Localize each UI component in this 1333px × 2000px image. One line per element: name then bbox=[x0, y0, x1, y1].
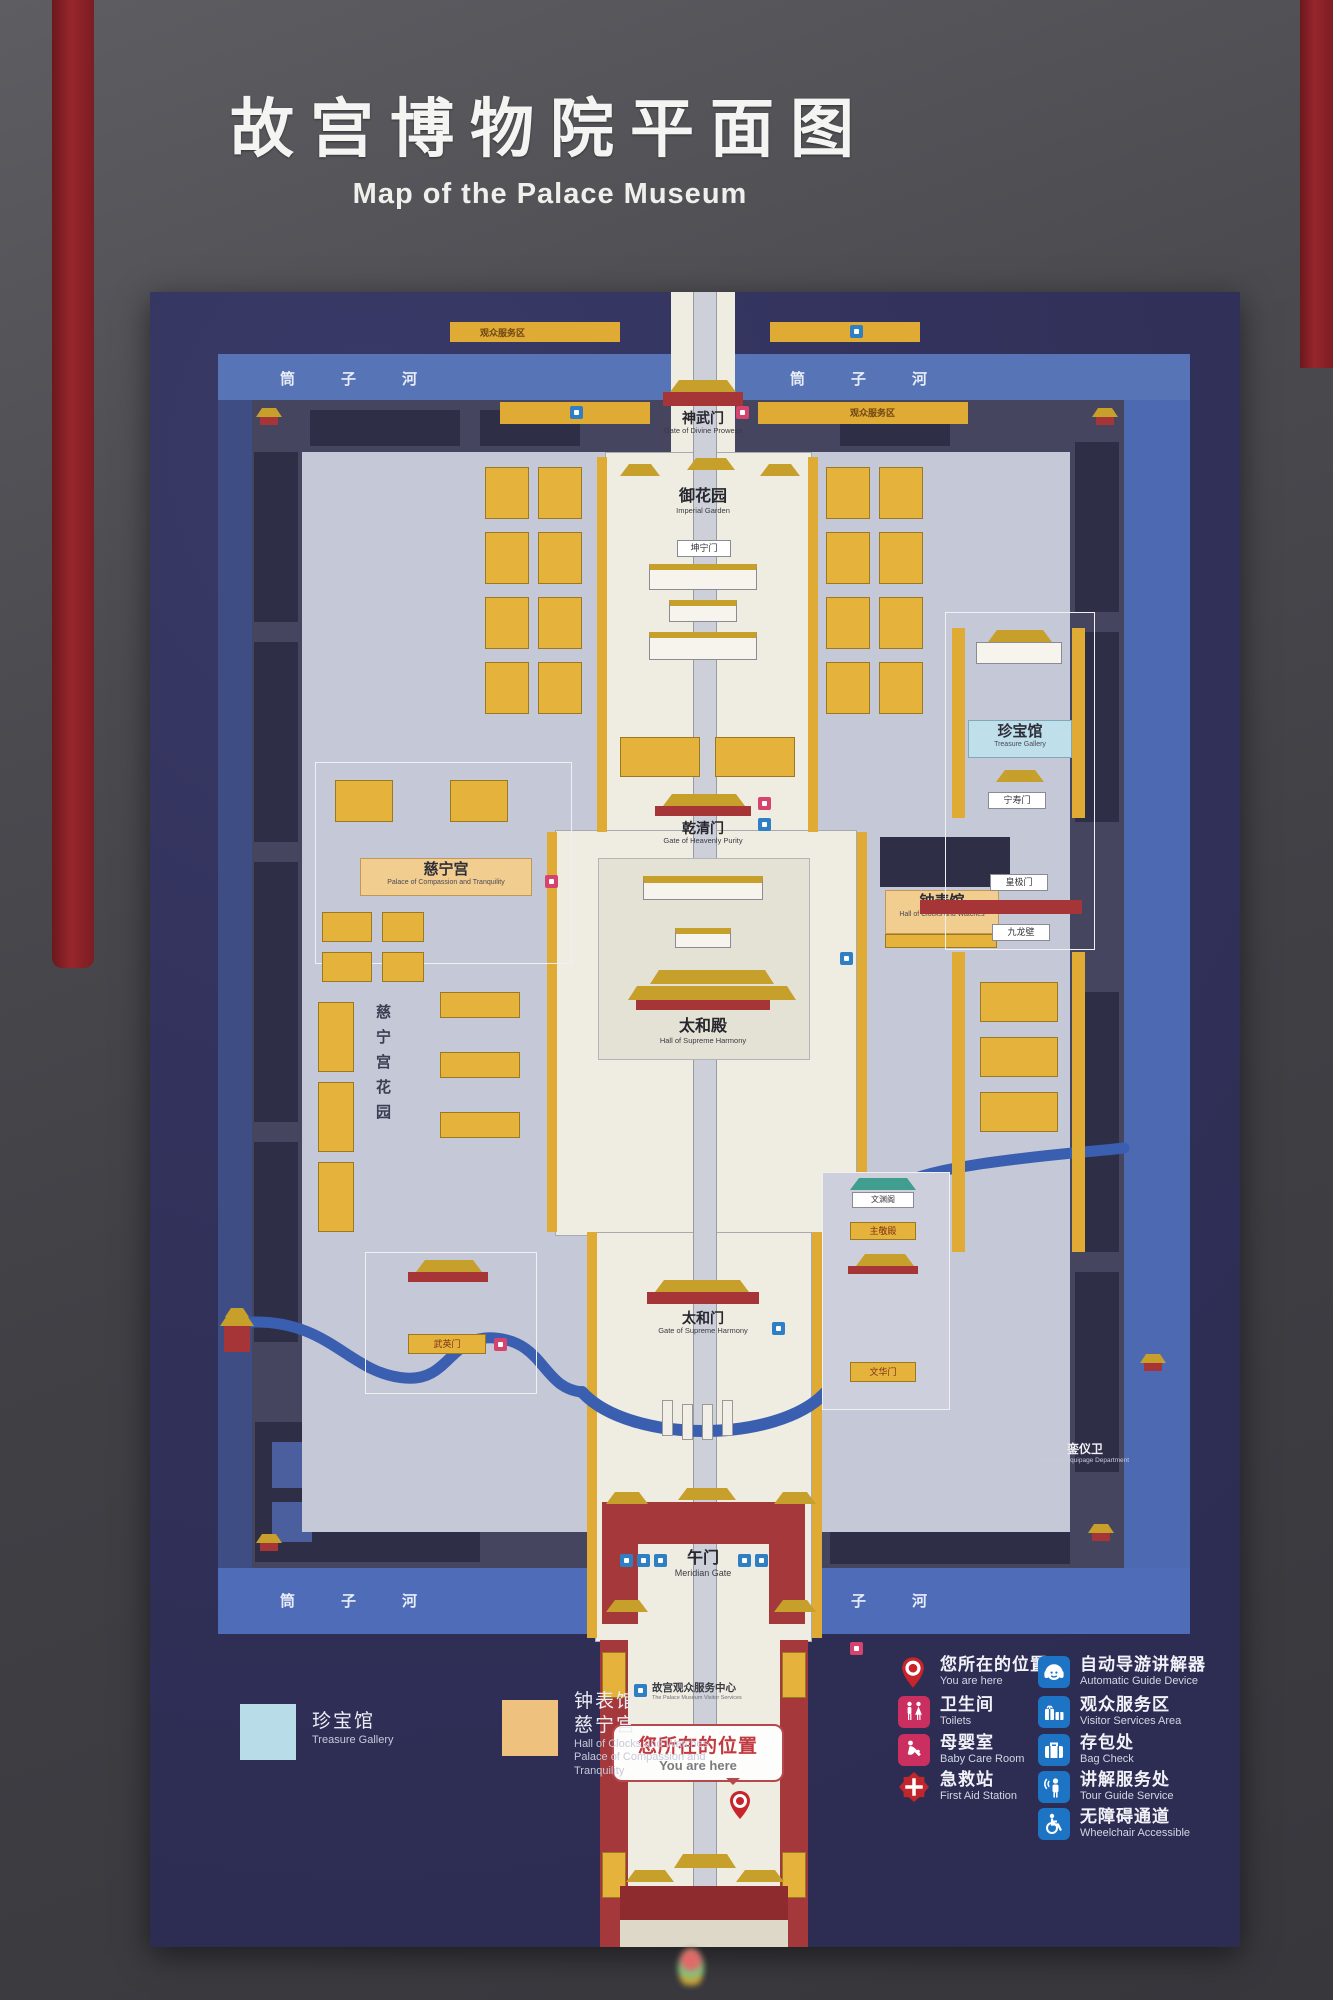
visitor-services-icon bbox=[1038, 1696, 1070, 1728]
legend-tour-guide: 讲解服务处 Tour Guide Service bbox=[1038, 1771, 1070, 1803]
label-wumen: 午门 Meridian Gate bbox=[643, 1550, 763, 1579]
palace-block bbox=[322, 912, 372, 942]
wumen-roof bbox=[678, 1488, 736, 1500]
label-nine-dragon-screen: 九龙壁 bbox=[992, 924, 1050, 941]
ningshou-gate-roof bbox=[996, 770, 1044, 782]
corridor bbox=[1072, 628, 1085, 818]
legend-toilets: 卫生间 Toilets bbox=[898, 1696, 930, 1728]
corner-tower bbox=[256, 408, 282, 425]
service-icon bbox=[620, 1554, 633, 1567]
red-post-right bbox=[1300, 0, 1333, 368]
legend-swatch-treasure bbox=[240, 1704, 296, 1760]
wuying-hall-base bbox=[408, 1272, 488, 1282]
legend-baby-care: 母婴室 Baby Care Room bbox=[898, 1734, 930, 1766]
corridor bbox=[952, 952, 965, 1252]
east-gate-tower bbox=[1140, 1354, 1166, 1371]
palace-block bbox=[318, 1162, 354, 1232]
label-luanyiwei: 銮仪卫 Imperial Equipage Department bbox=[1020, 1440, 1150, 1464]
corridor bbox=[1072, 952, 1085, 1252]
wenhua-hall-roof bbox=[856, 1254, 914, 1266]
label-wuyingmen: 武英门 bbox=[408, 1334, 486, 1354]
south-gate-illustration bbox=[620, 1848, 788, 1947]
water-bridge bbox=[662, 1400, 673, 1436]
red-post-left bbox=[52, 0, 94, 968]
legend-auto-guide: 自动导游讲解器 Automatic Guide Device bbox=[1038, 1656, 1070, 1688]
palace-block bbox=[980, 982, 1058, 1022]
you-are-here-pin bbox=[728, 1790, 752, 1820]
palace-block bbox=[440, 992, 520, 1018]
legend-swatch-clocks bbox=[502, 1700, 558, 1756]
water-bridge bbox=[702, 1404, 713, 1440]
label-wenhuamen: 文华门 bbox=[850, 1362, 916, 1382]
page-title: 故宫博物院平面图 bbox=[150, 78, 950, 170]
wumen-roof bbox=[774, 1492, 816, 1504]
legend-clocks-text: 钟表馆 慈宁宫 Hall of Clocks and Watches Palac… bbox=[574, 1690, 744, 1779]
wenhua-hall-base bbox=[848, 1266, 918, 1274]
first-aid-icon bbox=[898, 1771, 930, 1803]
palace-block bbox=[382, 952, 424, 982]
bag-check-icon bbox=[1038, 1734, 1070, 1766]
treasure-hall-roof bbox=[988, 630, 1052, 642]
tour-guide-icon bbox=[1038, 1771, 1070, 1803]
map-panel: 筒子河 筒子河 筒子河 筒子河 bbox=[150, 292, 1240, 1947]
corner-tower bbox=[1092, 408, 1118, 425]
label-cininggong: 慈宁宫 Palace of Compassion and Tranquility bbox=[360, 858, 532, 896]
legend-bag-check: 存包处 Bag Check bbox=[1038, 1734, 1070, 1766]
toilets-icon bbox=[850, 1642, 863, 1655]
toilets-icon bbox=[494, 1338, 507, 1351]
label-treasure-gallery: 珍宝馆 Treasure Gallery bbox=[968, 720, 1072, 758]
legend-wheelchair: 无障碍通道 Wheelchair Accessible bbox=[1038, 1808, 1070, 1840]
wheelchair-icon bbox=[772, 1322, 785, 1335]
wheelchair-icon bbox=[1038, 1808, 1070, 1840]
corner-tower bbox=[256, 1534, 282, 1551]
label-ningshoumen: 宁寿门 bbox=[988, 792, 1046, 809]
wuying-hall-roof bbox=[416, 1260, 482, 1272]
page-subtitle: Map of the Palace Museum bbox=[150, 178, 950, 211]
label-wenyuange: 文渊阁 bbox=[852, 1192, 914, 1208]
label-huangjimen: 皇极门 bbox=[990, 874, 1048, 891]
treasure-hall bbox=[976, 642, 1062, 664]
legend-treasure-text: 珍宝馆 Treasure Gallery bbox=[312, 1710, 394, 1748]
palace-block bbox=[318, 1082, 354, 1152]
toilets-icon bbox=[898, 1696, 930, 1728]
toilets-icon bbox=[758, 797, 771, 810]
palace-block bbox=[382, 912, 424, 942]
wumen-roof bbox=[606, 1492, 648, 1504]
sign-board: 故宫博物院平面图 Map of the Palace Museum 筒子河 筒子… bbox=[0, 0, 1333, 2000]
wumen-roof bbox=[606, 1600, 648, 1612]
hanging-charm bbox=[678, 1948, 704, 1988]
wenyuange-roof bbox=[850, 1178, 916, 1190]
baby-care-icon bbox=[898, 1734, 930, 1766]
palace-block bbox=[450, 780, 508, 822]
nine-dragon-screen-wall bbox=[920, 900, 1082, 914]
corridor bbox=[952, 628, 965, 818]
label-zhujingdian: 主敬殿 bbox=[850, 1222, 916, 1240]
audio-guide-icon bbox=[1038, 1656, 1070, 1688]
palace-block bbox=[440, 1052, 520, 1078]
toilets-icon bbox=[545, 875, 558, 888]
palace-block bbox=[318, 1002, 354, 1072]
wall-kiosk bbox=[782, 1652, 806, 1698]
west-pagoda bbox=[220, 1308, 254, 1352]
wumen-roof bbox=[774, 1600, 816, 1612]
you-are-here-pin-icon bbox=[900, 1656, 926, 1689]
palace-block bbox=[980, 1037, 1058, 1077]
palace-block bbox=[322, 952, 372, 982]
legend-visitor-services: 观众服务区 Visitor Services Area bbox=[1038, 1696, 1070, 1728]
water-bridge bbox=[722, 1400, 733, 1436]
information-icon bbox=[840, 952, 853, 965]
palace-block bbox=[335, 780, 393, 822]
palace-block bbox=[980, 1092, 1058, 1132]
legend-first-aid: 急救站 First Aid Station bbox=[898, 1771, 930, 1803]
wheelchair-icon bbox=[758, 818, 771, 831]
water-bridge bbox=[682, 1404, 693, 1440]
corner-tower bbox=[1088, 1524, 1114, 1541]
palace-block bbox=[440, 1112, 520, 1138]
label-cining-garden: 慈宁宫花园 bbox=[372, 1004, 393, 1244]
